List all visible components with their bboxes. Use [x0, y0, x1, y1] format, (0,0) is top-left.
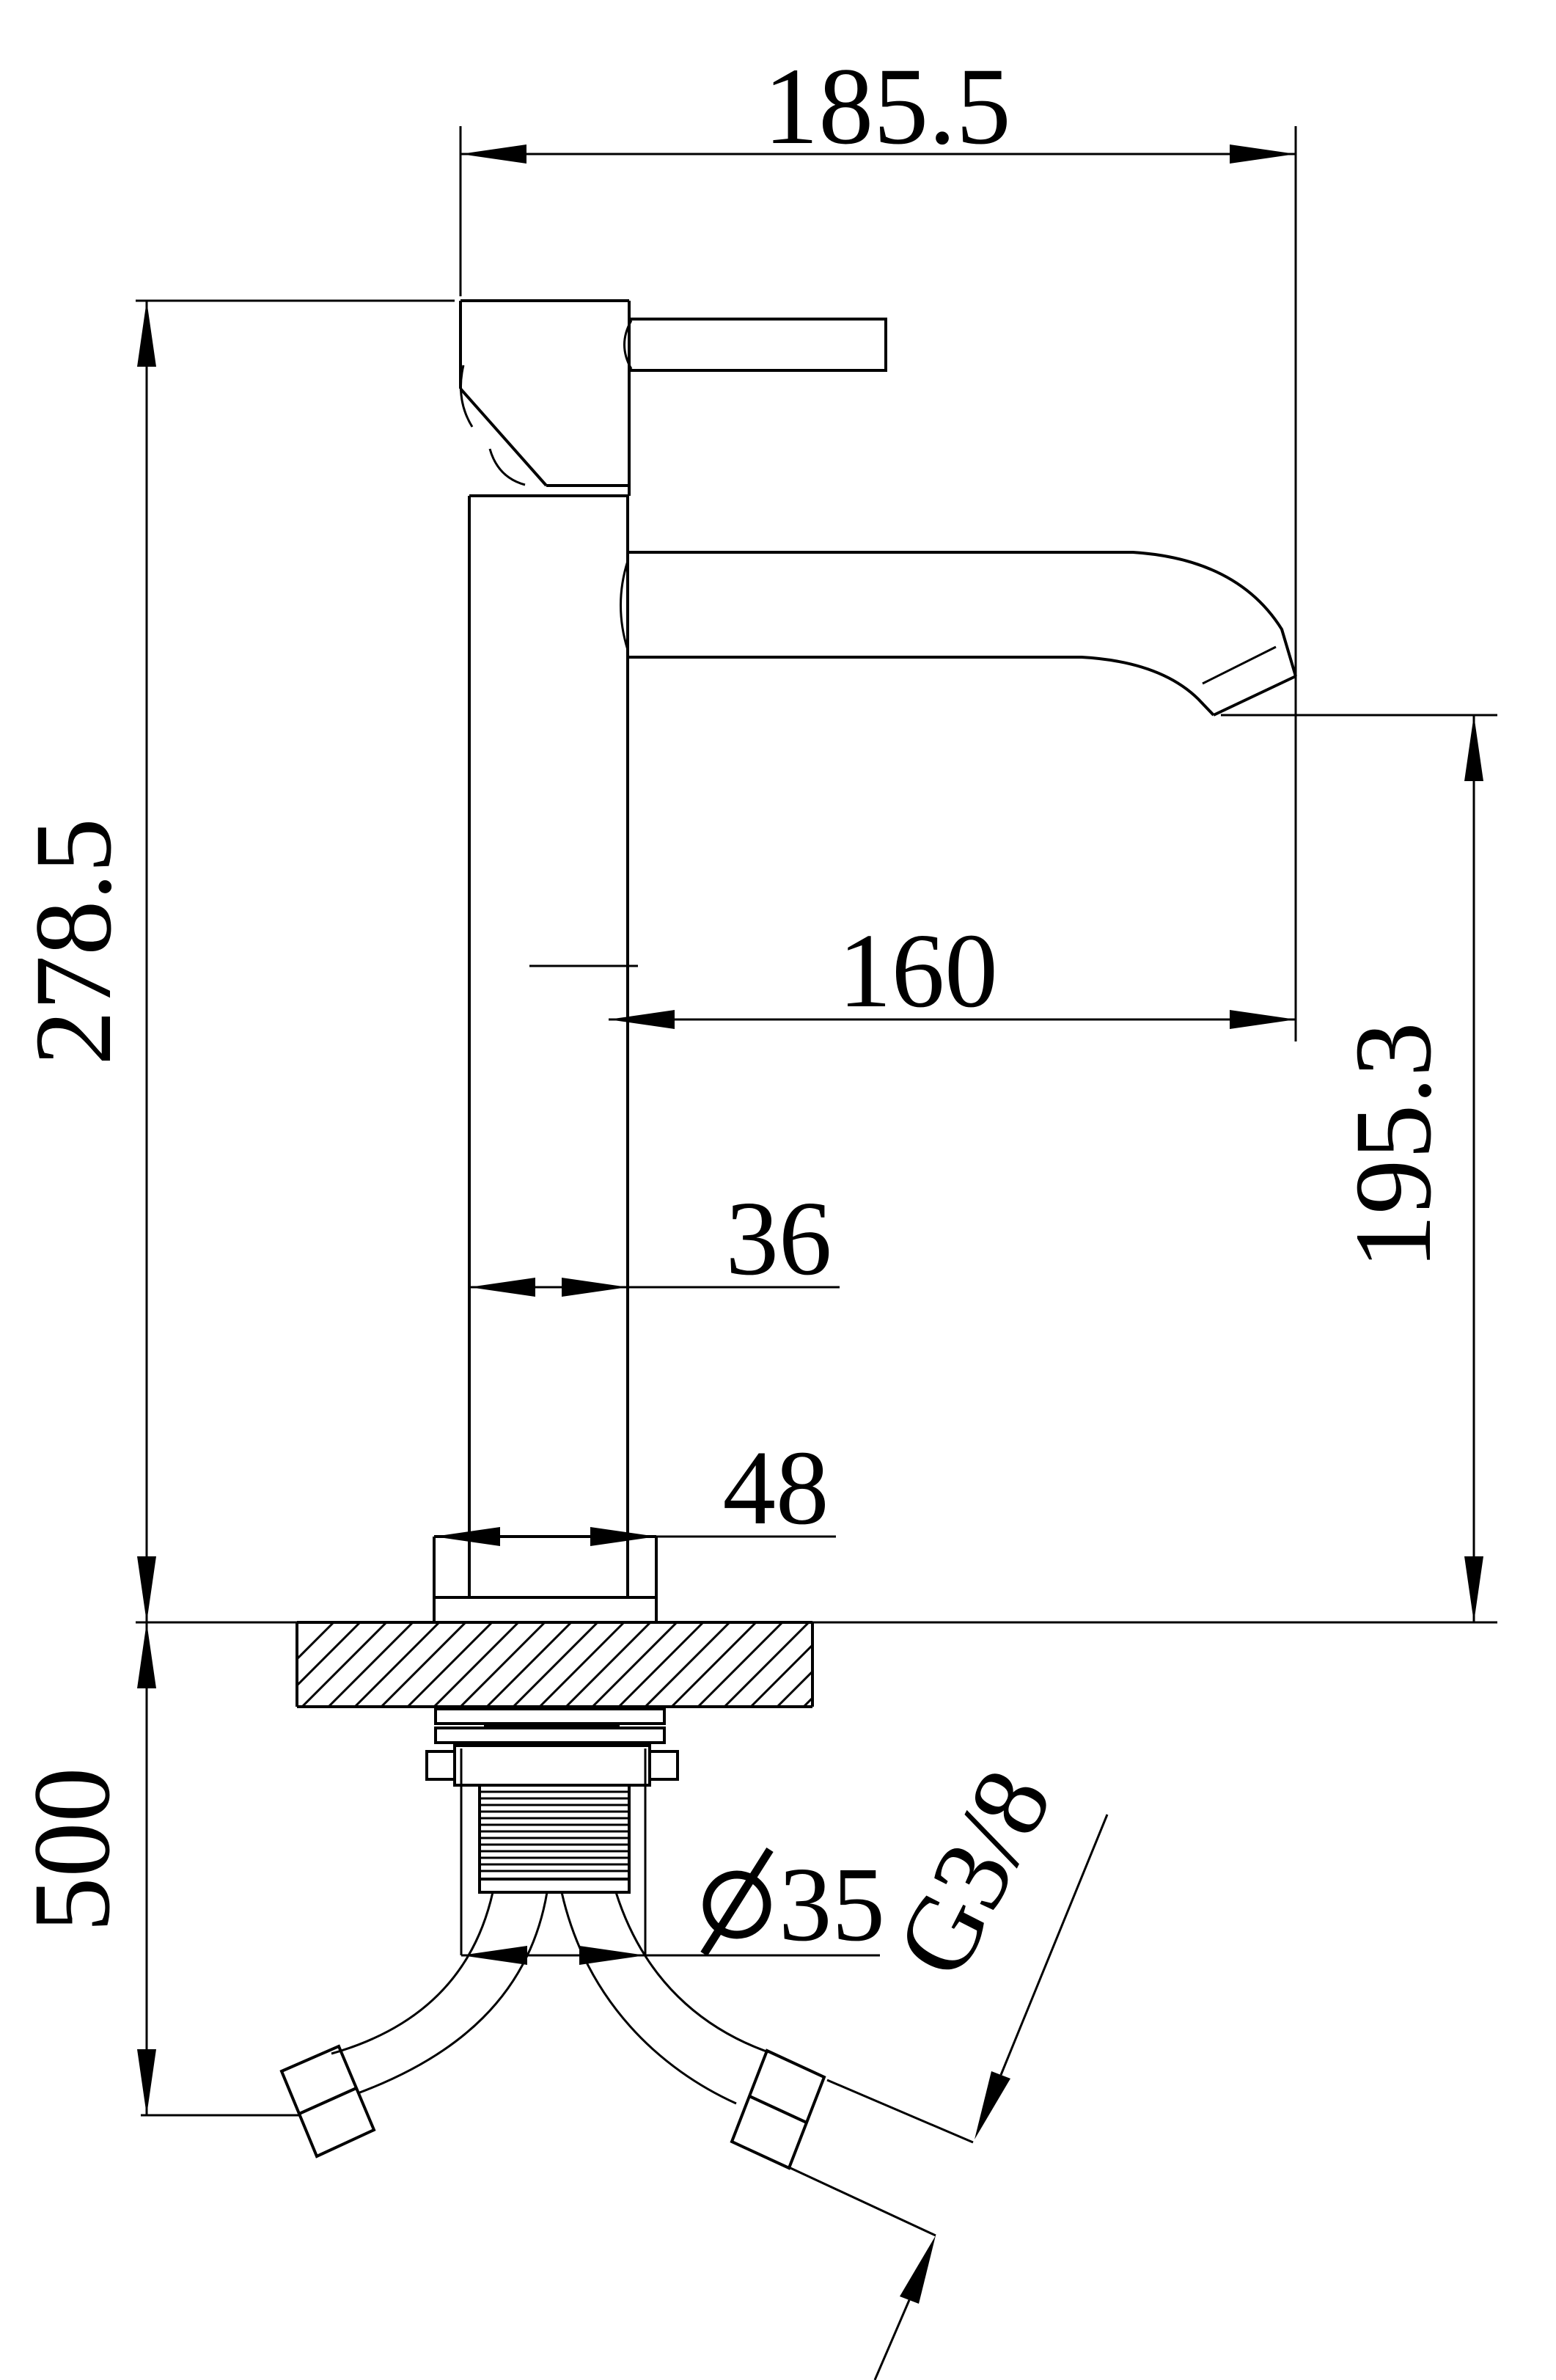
spout: [621, 552, 1296, 715]
dim-overall-width: 185.5: [460, 45, 1296, 1041]
dim-hose-length: 500: [11, 1622, 299, 2115]
dim-text-shank-diameter: 35: [779, 1846, 885, 1963]
dim-body-width: 36: [469, 1180, 840, 1297]
leader-arrow-icon: [975, 2071, 1010, 2139]
right-hose-fitting: [732, 2051, 824, 2168]
dim-text-overall-height: 278.5: [12, 818, 134, 1066]
drawing-sheet: 185.5 278.5 500 195.3 160 36: [0, 0, 1556, 2380]
lock-nut: [427, 1746, 678, 1785]
arrow-left-icon: [469, 1278, 535, 1297]
arrow-up-icon: [137, 301, 156, 367]
dim-text-thread-spec: G3/8: [873, 1751, 1074, 1994]
supply-hoses: [331, 1892, 768, 2103]
spout-outlet-rim: [1203, 647, 1276, 684]
dim-text-base-width: 48: [723, 1429, 829, 1547]
counter-hatching: [249, 1622, 888, 1707]
dim-text-body-width: 36: [726, 1180, 832, 1297]
arrow-down-icon: [137, 1556, 156, 1622]
arrow-right-icon: [1230, 1010, 1296, 1029]
dim-text-spout-reach: 160: [838, 912, 998, 1030]
shank-collar: [480, 1879, 629, 1892]
threaded-shank: [480, 1785, 629, 1892]
arrow-right-icon: [590, 1527, 656, 1546]
counter-section: [249, 1622, 888, 1707]
dim-text-hose-length: 500: [11, 1768, 133, 1933]
dim-spout-height: 195.3: [812, 715, 1497, 1622]
arrow-right-icon: [562, 1278, 628, 1297]
arrow-right-icon: [1230, 144, 1296, 164]
dim-text-spout-height: 195.3: [1332, 1022, 1454, 1270]
body-column: [469, 496, 638, 1597]
arrow-left-icon: [434, 1527, 500, 1546]
handle-lever: [625, 319, 887, 370]
arrow-up-icon: [1464, 715, 1483, 781]
arrow-down-icon: [1464, 1556, 1483, 1622]
faucet-head: [460, 301, 629, 496]
left-hose-fitting: [282, 2046, 374, 2156]
hose-end-leader: [790, 2168, 936, 2380]
faucet-technical-drawing: 185.5 278.5 500 195.3 160 36: [0, 0, 1556, 2380]
arrow-left-icon: [609, 1010, 675, 1029]
diameter-symbol-icon: [704, 1850, 770, 1954]
dim-overall-height: 278.5: [12, 301, 455, 1622]
arrow-up-icon: [137, 1622, 156, 1688]
hose-end-arrow: [900, 2236, 936, 2304]
arrow-down-icon: [137, 2049, 156, 2115]
dim-text-overall-width: 185.5: [763, 45, 1011, 167]
mounting-washers: [436, 1709, 664, 1745]
dim-spout-reach: 160: [609, 912, 1296, 1030]
spout-outlet-face: [1214, 676, 1296, 715]
arrow-right-icon: [579, 1946, 645, 1965]
arrow-left-icon: [460, 144, 526, 164]
dim-base-width: 48: [434, 1429, 836, 1547]
base-flange: [434, 1537, 656, 1622]
